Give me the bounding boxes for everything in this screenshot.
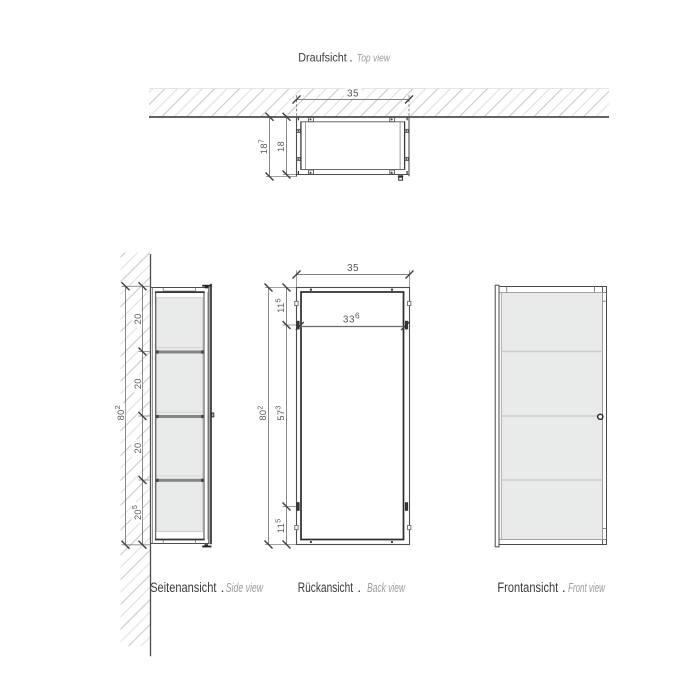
svg-text:Rückansicht: Rückansicht <box>298 580 353 596</box>
svg-text:.: . <box>349 51 352 65</box>
svg-text:Back view: Back view <box>367 580 405 595</box>
svg-text:18: 18 <box>276 141 286 152</box>
svg-text:20: 20 <box>133 378 143 389</box>
svg-text:20: 20 <box>133 313 143 324</box>
svg-text:.: . <box>562 580 566 596</box>
svg-text:Top view: Top view <box>357 53 391 65</box>
svg-text:20: 20 <box>133 443 143 454</box>
svg-text:35: 35 <box>347 263 359 274</box>
svg-text:Draufsicht: Draufsicht <box>298 51 347 65</box>
svg-text:.: . <box>221 580 225 596</box>
svg-text:Front view: Front view <box>568 580 605 595</box>
svg-text:35: 35 <box>347 88 359 99</box>
svg-text:Side view: Side view <box>226 580 264 595</box>
svg-text:Frontansicht: Frontansicht <box>497 580 558 596</box>
svg-text:Seitenansicht: Seitenansicht <box>150 580 216 596</box>
svg-text:.: . <box>357 580 361 596</box>
